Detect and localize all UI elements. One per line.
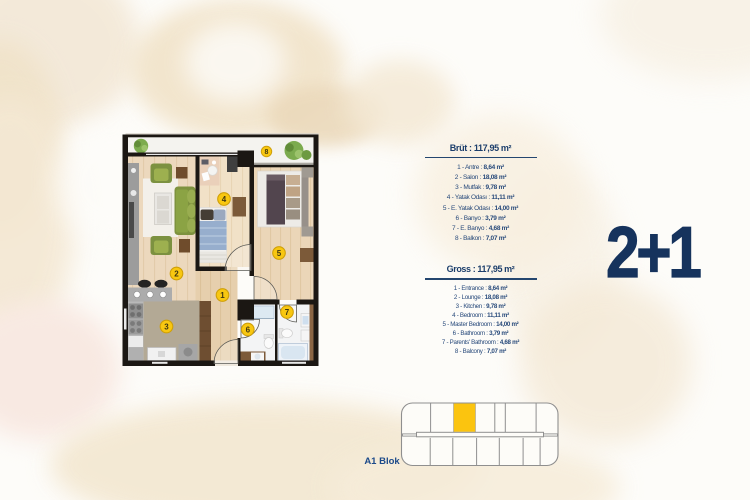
svg-text:5: 5 (277, 249, 282, 258)
svg-text:3: 3 (164, 323, 169, 332)
svg-text:6: 6 (246, 326, 251, 335)
svg-text:7: 7 (285, 308, 290, 317)
svg-text:2: 2 (174, 270, 179, 279)
svg-text:8: 8 (265, 149, 269, 156)
svg-text:1: 1 (220, 291, 225, 300)
svg-text:4: 4 (222, 195, 227, 204)
